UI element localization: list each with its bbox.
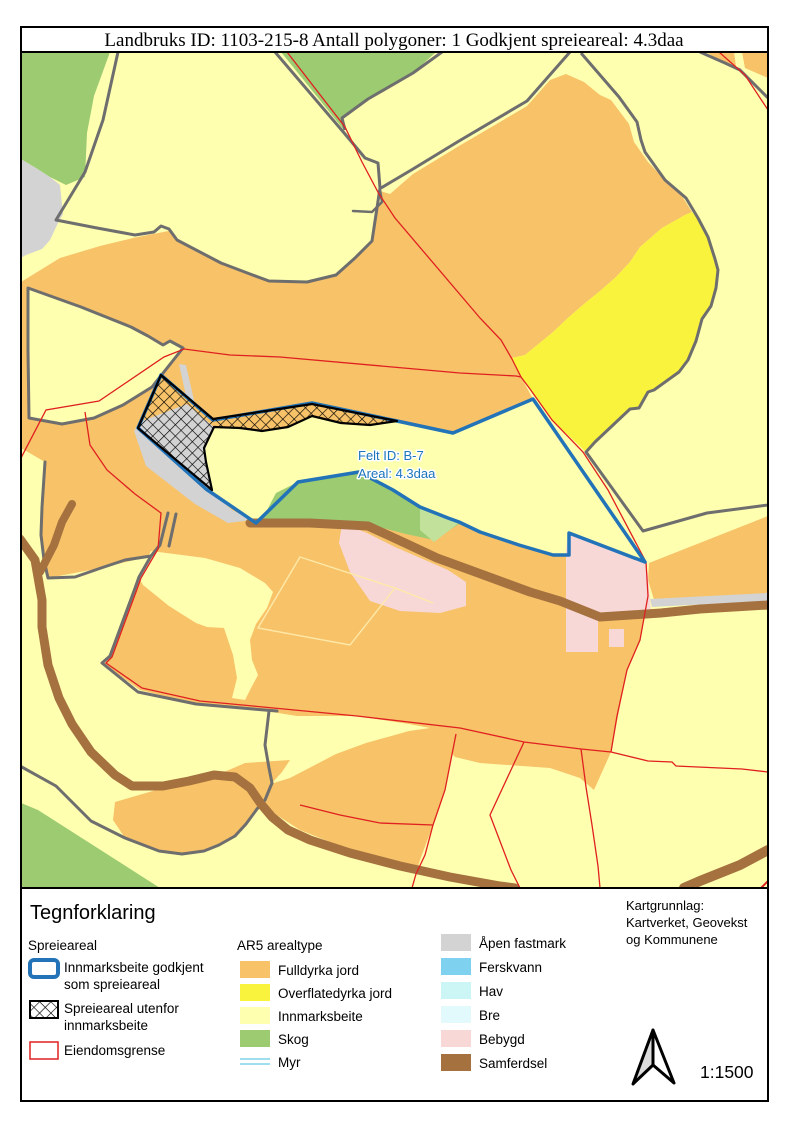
svg-text:Myr: Myr [278, 1055, 301, 1070]
svg-text:Bre: Bre [479, 1008, 500, 1023]
svg-text:Innmarksbeite: Innmarksbeite [278, 1009, 363, 1024]
svg-text:Overflatedyrka jord: Overflatedyrka jord [278, 986, 392, 1001]
svg-text:1:1500: 1:1500 [700, 1062, 754, 1082]
svg-text:Hav: Hav [479, 984, 503, 999]
svg-text:og Kommunene: og Kommunene [626, 932, 718, 947]
svg-text:Spreieareal: Spreieareal [28, 938, 97, 953]
svg-text:Landbruks ID: 1103-215-8 Antal: Landbruks ID: 1103-215-8 Antall polygone… [104, 30, 684, 51]
svg-text:AR5 arealtype: AR5 arealtype [237, 938, 323, 953]
svg-text:Fulldyrka jord: Fulldyrka jord [278, 963, 359, 978]
svg-text:Bebygd: Bebygd [479, 1032, 525, 1047]
svg-text:Tegnforklaring: Tegnforklaring [30, 902, 156, 924]
svg-text:Ferskvann: Ferskvann [479, 960, 542, 975]
svg-text:Felt ID: B-7: Felt ID: B-7 [358, 448, 424, 463]
svg-text:Samferdsel: Samferdsel [479, 1056, 547, 1071]
svg-text:Skog: Skog [278, 1032, 309, 1047]
svg-text:Spreieareal utenfor: Spreieareal utenfor [64, 1001, 179, 1016]
svg-text:som spreieareal: som spreieareal [64, 977, 160, 992]
svg-text:Areal: 4.3daa: Areal: 4.3daa [358, 466, 436, 481]
svg-text:Kartgrunnlag:: Kartgrunnlag: [626, 898, 704, 913]
svg-text:Åpen fastmark: Åpen fastmark [479, 936, 566, 951]
svg-text:innmarksbeite: innmarksbeite [64, 1018, 148, 1033]
svg-text:Eiendomsgrense: Eiendomsgrense [64, 1043, 165, 1058]
svg-text:Kartverket, Geovekst: Kartverket, Geovekst [626, 915, 748, 930]
svg-text:Innmarksbeite godkjent: Innmarksbeite godkjent [64, 960, 204, 975]
